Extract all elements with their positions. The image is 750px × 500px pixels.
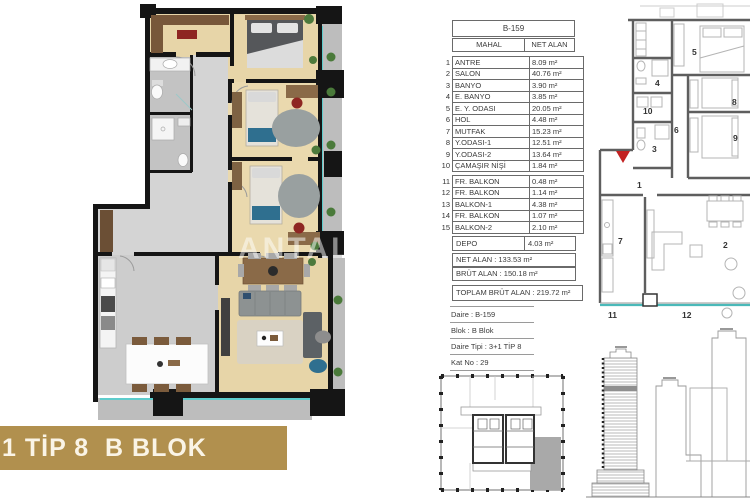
info-blok: Blok : B Blok [450, 323, 534, 339]
info-tipi: Daire Tipi : 3+1 TİP 8 [450, 339, 534, 355]
building-elevation [585, 328, 750, 500]
plant-icon [309, 56, 317, 64]
svg-text:8: 8 [732, 97, 737, 107]
depo-name: DEPO [452, 236, 527, 251]
svg-text:1: 1 [637, 180, 642, 190]
table-row: 5E. Y. ODASI20.05 m² [438, 103, 584, 115]
plant-icon [334, 296, 343, 305]
table-row: 6HOL4.48 m² [438, 114, 584, 126]
plant-icon [327, 53, 336, 62]
table-row: 9Y.ODASI-213.64 m² [438, 149, 584, 161]
schematic-furniture [602, 23, 745, 318]
schematic-unit-plan: 1 2 3 4 5 6 7 8 9 10 11 12 [595, 0, 750, 330]
plant-icon [312, 146, 321, 155]
table-row: 8Y.ODASI-112.51 m² [438, 137, 584, 149]
unit-info-list: Daire : B-159 Blok : B Blok Daire Tipi :… [450, 306, 534, 371]
column-header-room: MAHAL [452, 38, 526, 52]
table-row: 4E. BANYO3.85 m² [438, 91, 584, 103]
total-brut: BRÜT ALAN : 150.18 m² [452, 267, 576, 281]
balcony-post [643, 294, 657, 306]
outline-towers [656, 328, 750, 497]
svg-text:3: 3 [652, 144, 657, 154]
unit-id-header: B-159 [452, 20, 575, 37]
plant-icon [334, 368, 343, 377]
info-daire: Daire : B-159 [450, 306, 534, 323]
table-row: 15BALKON-22.10 m² [438, 222, 584, 234]
plant-icon [327, 208, 336, 217]
plan-title-banner: 1 TİP 8 B BLOK [0, 426, 287, 470]
table-row: 14FR. BALKON1.07 m² [438, 210, 584, 222]
table-row: 12FR. BALKON1.14 m² [438, 187, 584, 199]
svg-text:11: 11 [608, 310, 617, 320]
highlighted-floor [604, 386, 637, 391]
table-row: 3BANYO3.90 m² [438, 80, 584, 92]
key-plan [435, 370, 570, 500]
plant-icon [304, 14, 314, 24]
table-row: 10ÇAMAŞIR NİŞİ1.84 m² [438, 160, 584, 172]
svg-text:6: 6 [674, 125, 679, 135]
depo-area: 4.03 m² [524, 236, 576, 251]
plant-icon [327, 141, 336, 150]
svg-text:10: 10 [643, 106, 653, 116]
plant-icon [327, 88, 336, 97]
table-row: 13BALKON-14.38 m² [438, 199, 584, 211]
plan-sheet: ANTAL B-159 MAHAL NET ALAN 1ANTRE8.09 m²… [0, 0, 750, 500]
total-net: NET ALAN : 133.53 m² [452, 253, 576, 267]
table-row: 2SALON40.76 m² [438, 68, 584, 80]
watermark-text: ANTAL [238, 232, 347, 265]
column-header-area: NET ALAN [524, 38, 575, 52]
entrance-marker-icon [616, 151, 630, 163]
table-row: 1ANTRE8.09 m² [438, 57, 584, 69]
info-kat: Kat No : 29 [450, 355, 534, 371]
svg-text:12: 12 [682, 310, 692, 320]
floorplan-render: ANTAL [85, 3, 347, 428]
svg-text:2: 2 [723, 240, 728, 250]
striped-tower [592, 346, 649, 497]
table-row: 11FR. BALKON0.48 m² [438, 176, 584, 188]
balcony-rows: 11FR. BALKON0.48 m² 12FR. BALKON1.14 m² … [438, 175, 584, 234]
svg-text:7: 7 [618, 236, 623, 246]
svg-text:4: 4 [655, 78, 660, 88]
core [461, 407, 541, 471]
room-rows: 1ANTRE8.09 m² 2SALON40.76 m² 3BANYO3.90 … [438, 56, 584, 172]
adjacent-unit-lines [640, 4, 750, 17]
svg-text:9: 9 [733, 133, 738, 143]
table-row: 7MUTFAK15.23 m² [438, 126, 584, 138]
svg-text:5: 5 [692, 47, 697, 57]
total-toplam: TOPLAM BRÜT ALAN : 219.72 m² [452, 285, 583, 301]
